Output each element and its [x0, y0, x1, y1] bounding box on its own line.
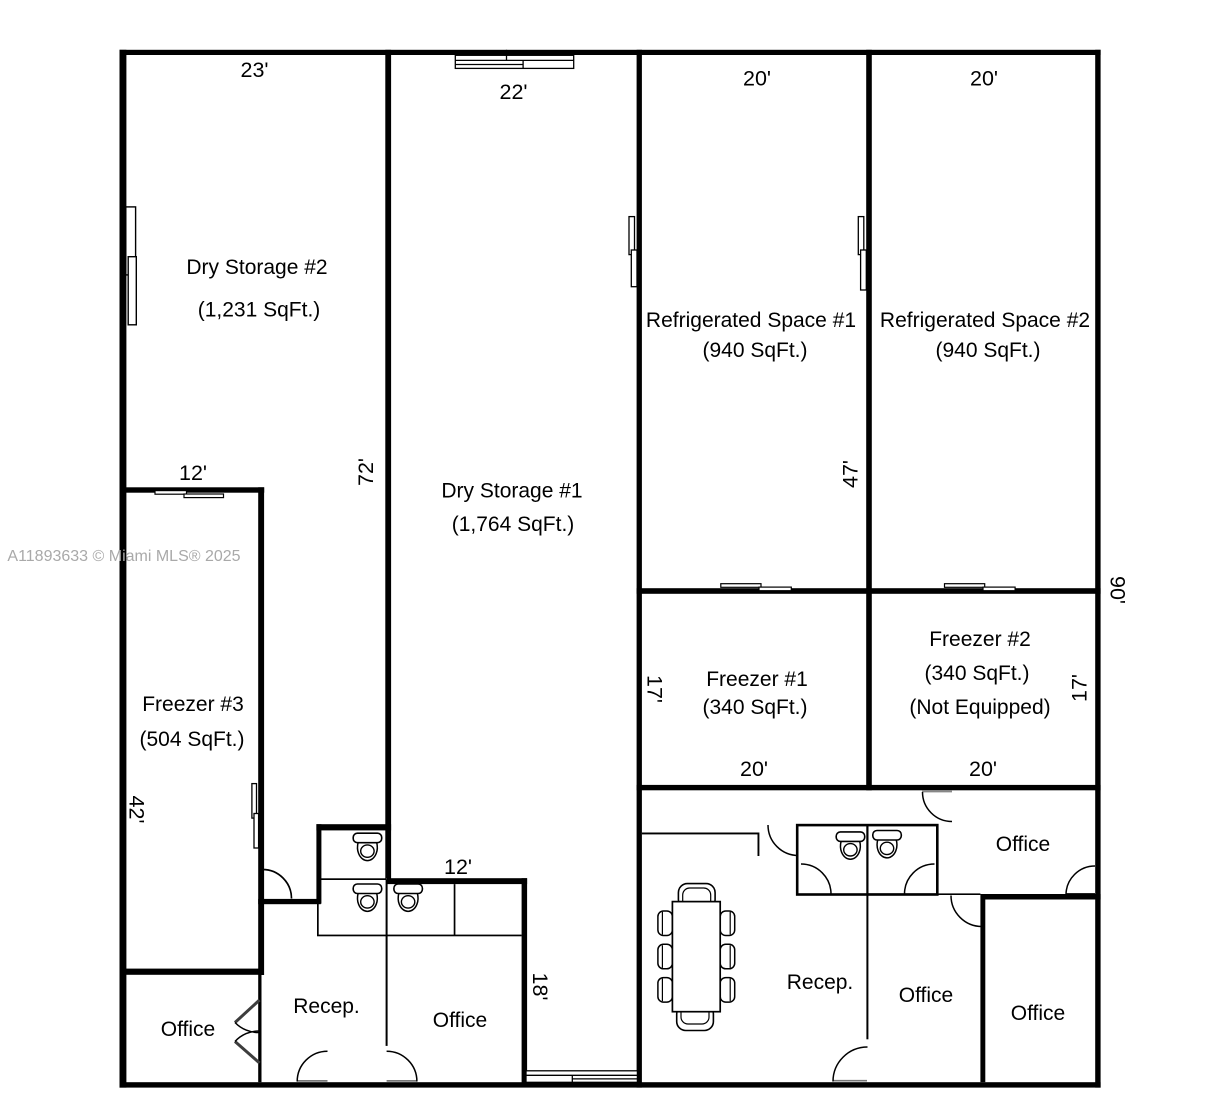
svg-text:Dry Storage #1: Dry Storage #1	[441, 480, 582, 503]
svg-text:22': 22'	[499, 80, 527, 104]
svg-text:42': 42'	[125, 795, 149, 823]
svg-text:(340 SqFt.): (340 SqFt.)	[702, 696, 807, 719]
svg-text:(340 SqFt.): (340 SqFt.)	[924, 662, 1029, 685]
svg-text:Office: Office	[899, 984, 953, 1007]
svg-text:12': 12'	[444, 855, 472, 879]
svg-text:(940 SqFt.): (940 SqFt.)	[935, 339, 1040, 362]
svg-text:20': 20'	[970, 67, 998, 91]
svg-text:20': 20'	[743, 67, 771, 91]
svg-text:Freezer #2: Freezer #2	[929, 628, 1031, 651]
svg-text:Freezer #1: Freezer #1	[706, 668, 808, 691]
svg-text:47': 47'	[839, 460, 863, 488]
svg-text:23': 23'	[240, 58, 268, 82]
svg-text:Office: Office	[161, 1018, 215, 1041]
svg-text:17': 17'	[643, 675, 667, 703]
svg-text:18': 18'	[528, 972, 552, 1000]
svg-text:(1,231 SqFt.): (1,231 SqFt.)	[198, 299, 321, 322]
svg-text:(940 SqFt.): (940 SqFt.)	[702, 339, 807, 362]
svg-text:Refrigerated Space #2: Refrigerated Space #2	[880, 309, 1090, 332]
svg-text:12': 12'	[179, 461, 207, 485]
svg-text:Refrigerated Space #1: Refrigerated Space #1	[646, 309, 856, 332]
svg-text:20': 20'	[740, 757, 768, 781]
svg-text:Office: Office	[1011, 1002, 1065, 1025]
svg-text:Recep.: Recep.	[787, 971, 854, 994]
svg-text:Dry Storage #2: Dry Storage #2	[186, 256, 327, 279]
svg-text:90': 90'	[1106, 576, 1130, 604]
svg-text:72': 72'	[354, 458, 378, 486]
svg-text:A11893633 © Miami MLS® 2025: A11893633 © Miami MLS® 2025	[7, 548, 240, 565]
svg-text:(504 SqFt.): (504 SqFt.)	[139, 728, 244, 751]
svg-text:Office: Office	[996, 833, 1050, 856]
svg-text:Office: Office	[433, 1009, 487, 1032]
svg-text:Freezer #3: Freezer #3	[142, 693, 244, 716]
svg-text:17': 17'	[1068, 674, 1092, 702]
svg-text:(1,764 SqFt.): (1,764 SqFt.)	[452, 513, 575, 536]
svg-text:(Not Equipped): (Not Equipped)	[909, 696, 1050, 719]
svg-text:Recep.: Recep.	[293, 995, 360, 1018]
svg-text:20': 20'	[969, 757, 997, 781]
